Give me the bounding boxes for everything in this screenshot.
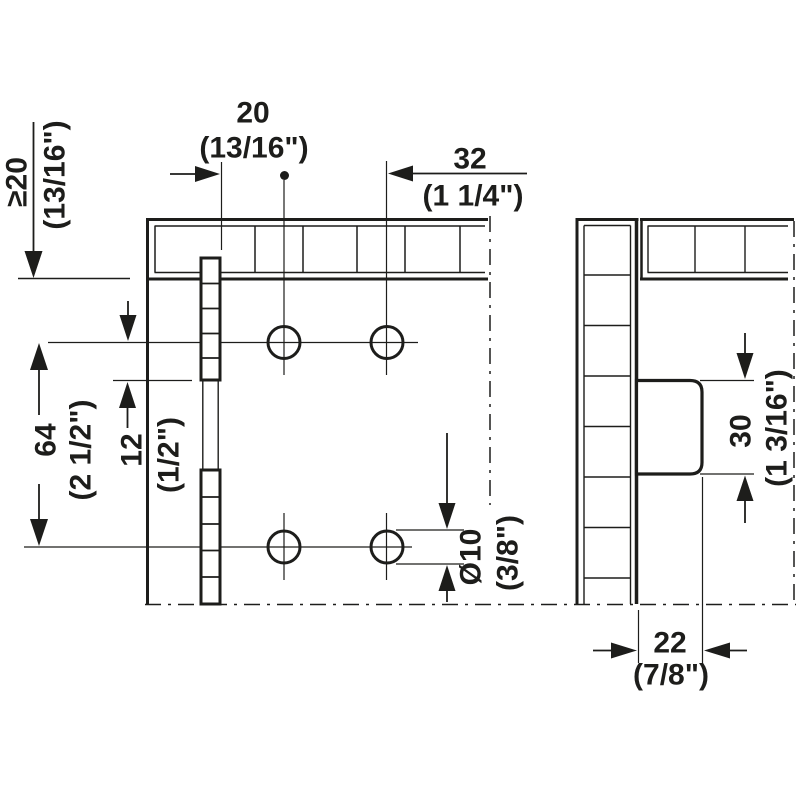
dim-label-inch: (13/16")	[39, 120, 72, 229]
side-view: 30 (1 3/16") 22 (7/8")	[576, 218, 795, 692]
fitting-strip-lower	[201, 470, 220, 604]
panel-outline-thick	[576, 218, 639, 604]
arrow-up	[737, 476, 754, 502]
dim-label-inch: (2 1/2")	[65, 400, 98, 501]
technical-drawing: ≥20 (13/16") 20 (13/16") 32 (1 1/4") 64 …	[0, 0, 800, 800]
panel-outline-thick	[640, 220, 794, 280]
panel-inner-lines	[648, 226, 789, 273]
hole-column-centerlines	[284, 161, 387, 580]
dim-hole-to-center: 32 (1 1/4")	[388, 143, 527, 213]
arrow-right	[195, 166, 220, 182]
drill-holes	[268, 327, 403, 564]
dim-label-inch: (1 1/4")	[423, 180, 524, 213]
dim-label-inch: (3/8")	[492, 515, 525, 591]
front-top-panel-section	[146, 218, 488, 604]
dim-fitting-height: 30 (1 3/16")	[700, 333, 794, 523]
arrow-down	[737, 353, 754, 379]
axis-dot	[280, 171, 289, 180]
fitting-strip-middle	[203, 382, 218, 469]
dim-label-inch: (1 3/16")	[761, 369, 794, 487]
panel-chip-dividers	[255, 226, 460, 273]
arrow-left	[388, 166, 413, 182]
panel-chip-dividers	[695, 226, 745, 273]
front-view: ≥20 (13/16") 20 (13/16") 32 (1 1/4") 64 …	[1, 97, 528, 605]
fitting-strip	[201, 258, 220, 604]
arrow-right	[611, 643, 637, 659]
side-vertical-panel-section	[576, 218, 639, 604]
arrow-down	[30, 519, 48, 546]
side-top-panel-section	[640, 218, 794, 280]
dim-label-mm: 64	[30, 423, 63, 457]
dim-label-mm: 30	[725, 414, 758, 447]
dim-hole-diameter: Ø10 (3/8")	[396, 433, 525, 602]
dim-strip-to-hole: 20 (13/16")	[170, 97, 309, 251]
drawing-canvas: ≥20 (13/16") 20 (13/16") 32 (1 1/4") 64 …	[0, 0, 800, 800]
arrow-up	[30, 343, 48, 370]
dim-label-mm: ≥20	[1, 157, 34, 207]
dim-label-inch: (13/16")	[199, 132, 308, 165]
dim-hole-to-strip-end: 12 (1/2")	[113, 301, 192, 493]
panel-inner-lines	[584, 226, 631, 605]
arrow-down	[25, 251, 43, 278]
dim-label-mm: 20	[236, 97, 269, 130]
arrow-left	[704, 643, 730, 659]
dim-label-inch: (7/8")	[633, 659, 709, 692]
arrow-down	[120, 315, 137, 341]
fitting-body	[637, 381, 703, 475]
dim-label-mm: 22	[653, 627, 686, 660]
dim-label-mm: Ø10	[455, 529, 488, 586]
dim-fitting-depth: 22 (7/8")	[593, 477, 747, 692]
dim-label-mm: 12	[116, 433, 149, 466]
arrow-up	[439, 565, 456, 591]
dim-label-mm: 32	[453, 143, 486, 176]
panel-outline-thick	[146, 218, 488, 604]
dim-label-inch: (1/2")	[153, 417, 186, 493]
panel-chip-dividers	[584, 275, 631, 578]
fitting-strip-upper	[201, 258, 220, 380]
dim-min-top-clearance: ≥20 (13/16")	[1, 120, 131, 278]
arrow-up	[119, 382, 136, 408]
dim-hole-row-spacing: 64 (2 1/2")	[30, 343, 98, 546]
arrow-down	[439, 503, 456, 529]
